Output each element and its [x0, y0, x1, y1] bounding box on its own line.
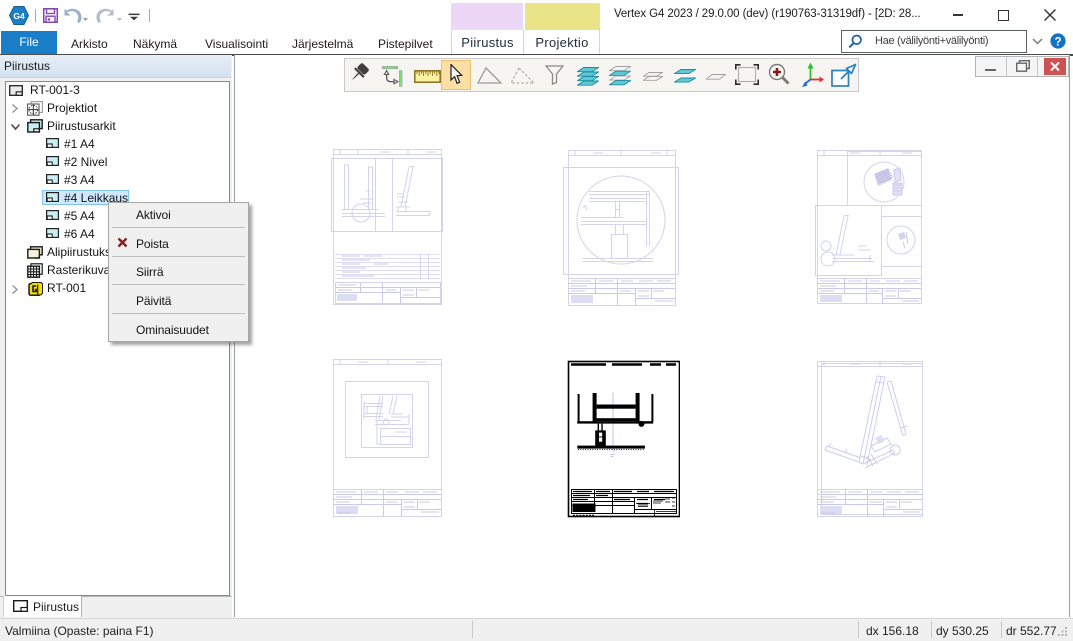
svg-text:G4: G4 — [13, 11, 25, 21]
svg-text:?: ? — [1054, 36, 1061, 48]
